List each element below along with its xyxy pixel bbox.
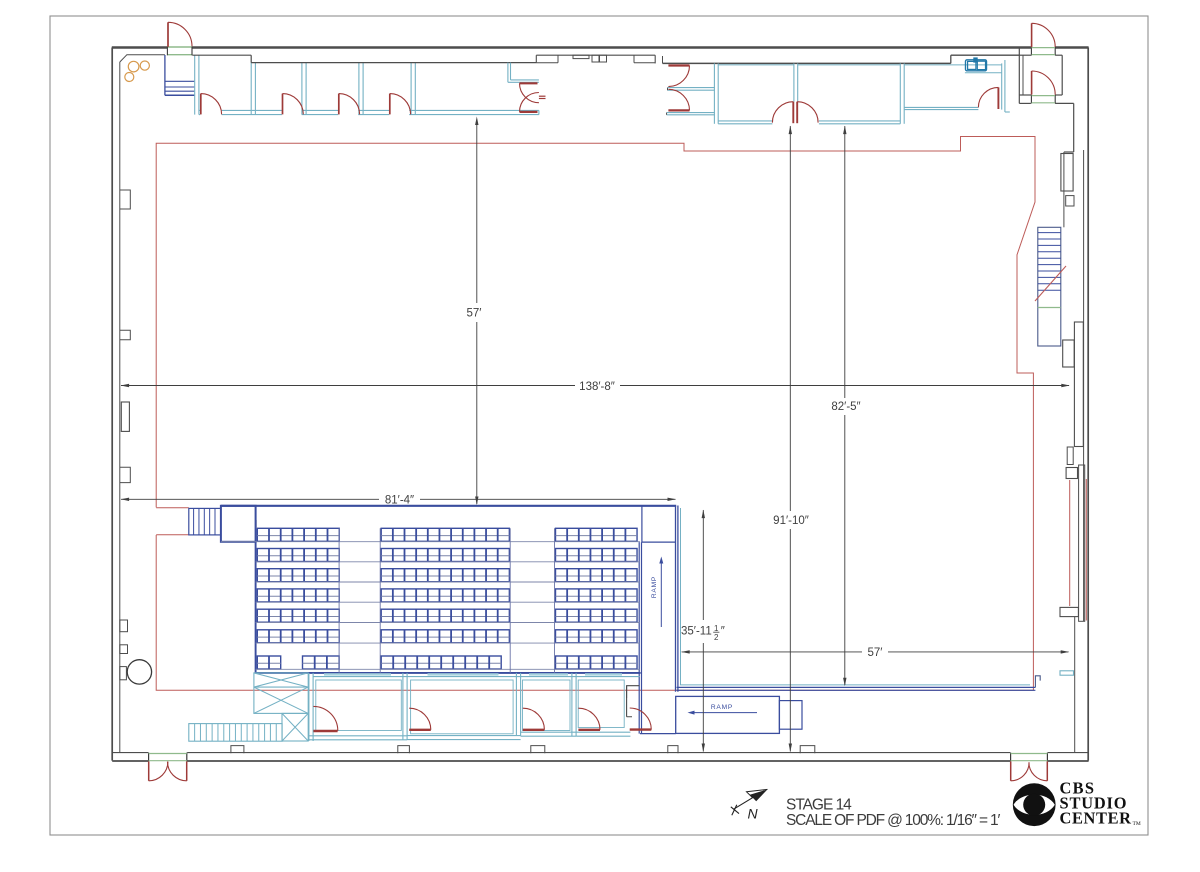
svg-text:35′-11: 35′-11: [681, 626, 712, 638]
svg-text:1: 1: [714, 624, 719, 633]
svg-text:57′: 57′: [868, 647, 883, 659]
svg-text:N: N: [747, 806, 758, 822]
svg-text:STAGE 14: STAGE 14: [786, 797, 853, 814]
svg-text:CENTER: CENTER: [1060, 809, 1132, 828]
svg-text:91′-10″: 91′-10″: [773, 515, 809, 527]
svg-text:82′-5″: 82′-5″: [831, 401, 860, 413]
svg-text:RAMP: RAMP: [711, 704, 733, 711]
svg-text:81′-4″: 81′-4″: [385, 494, 414, 506]
svg-text:138′-8″: 138′-8″: [579, 381, 615, 393]
svg-text:″: ″: [721, 626, 725, 638]
svg-text:2: 2: [714, 633, 719, 642]
svg-text:57′: 57′: [467, 308, 482, 320]
svg-text:RAMP: RAMP: [651, 576, 658, 598]
svg-text:TM: TM: [1133, 821, 1141, 827]
svg-text:SCALE OF PDF @ 100%: 1/16″ =: SCALE OF PDF @ 100%: 1/16″ = 1′: [786, 812, 1001, 829]
